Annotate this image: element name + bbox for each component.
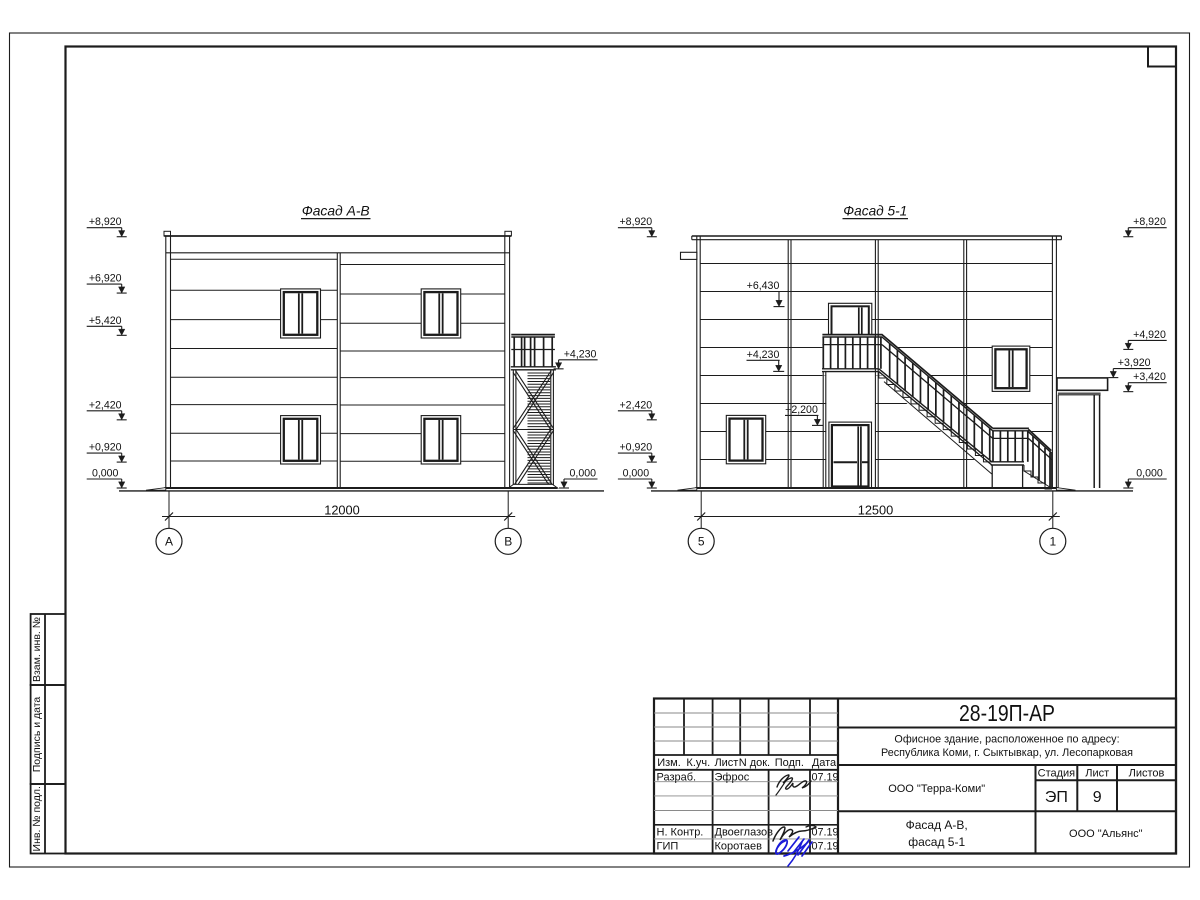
svg-text:Коротаев: Коротаев <box>715 841 763 853</box>
svg-text:+8,920: +8,920 <box>89 216 122 228</box>
svg-text:К.уч.: К.уч. <box>686 757 710 769</box>
svg-text:+4,230: +4,230 <box>747 349 780 361</box>
svg-text:Офисное здание, расположенное: Офисное здание, расположенное по адресу: <box>894 734 1119 746</box>
svg-text:+6,430: +6,430 <box>747 280 780 292</box>
svg-text:Лист: Лист <box>714 757 738 769</box>
svg-text:07.19: 07.19 <box>812 841 839 853</box>
svg-text:+2,420: +2,420 <box>89 399 122 411</box>
svg-text:А: А <box>165 535 173 549</box>
svg-text:+4,920: +4,920 <box>1133 329 1166 341</box>
svg-text:Подпись и дата: Подпись и дата <box>31 697 43 773</box>
svg-text:07.19: 07.19 <box>812 771 839 783</box>
svg-text:Н. Контр.: Н. Контр. <box>657 827 704 839</box>
svg-text:ГИП: ГИП <box>657 841 679 853</box>
svg-text:+6,920: +6,920 <box>89 273 122 285</box>
svg-text:0,000: 0,000 <box>569 468 596 480</box>
svg-text:Дата: Дата <box>812 757 837 769</box>
svg-text:+8,920: +8,920 <box>619 216 652 228</box>
svg-text:Лист: Лист <box>1085 768 1109 780</box>
svg-text:ООО "Терра-Коми": ООО "Терра-Коми" <box>888 783 985 795</box>
svg-text:Эфрос: Эфрос <box>715 771 750 783</box>
svg-text:0,000: 0,000 <box>1136 468 1163 480</box>
svg-text:ООО "Альянс": ООО "Альянс" <box>1069 828 1143 840</box>
svg-text:12500: 12500 <box>858 502 894 517</box>
svg-text:В: В <box>504 535 512 549</box>
svg-text:фасад 5-1: фасад 5-1 <box>908 835 965 849</box>
svg-text:Республика Коми, г. Сыктывкар,: Республика Коми, г. Сыктывкар, ул. Лесоп… <box>881 747 1133 759</box>
svg-text:+0,920: +0,920 <box>619 442 652 454</box>
svg-text:+8,920: +8,920 <box>1133 216 1166 228</box>
svg-text:Фасад А-В,: Фасад А-В, <box>906 818 968 832</box>
svg-text:0,000: 0,000 <box>623 468 650 480</box>
svg-text:ЭП: ЭП <box>1045 789 1068 806</box>
svg-text:Инв. № подл.: Инв. № подл. <box>31 786 43 851</box>
svg-text:Листов: Листов <box>1129 768 1165 780</box>
svg-text:Разраб.: Разраб. <box>657 771 697 783</box>
svg-text:+5,420: +5,420 <box>89 315 122 327</box>
svg-text:Фасад 5-1: Фасад 5-1 <box>843 203 907 219</box>
svg-text:N док.: N док. <box>739 757 770 769</box>
svg-text:Взам. инв. №: Взам. инв. № <box>31 617 43 682</box>
svg-text:+0,920: +0,920 <box>89 442 122 454</box>
svg-text:0,000: 0,000 <box>92 468 119 480</box>
svg-text:28-19П-АР: 28-19П-АР <box>959 700 1055 726</box>
svg-text:9: 9 <box>1093 789 1102 806</box>
svg-text:+3,420: +3,420 <box>1133 371 1166 383</box>
svg-text:Изм.: Изм. <box>657 757 681 769</box>
svg-text:1: 1 <box>1049 535 1056 549</box>
svg-text:Стадия: Стадия <box>1038 768 1076 780</box>
svg-text:5: 5 <box>698 535 705 549</box>
svg-text:+2,200: +2,200 <box>785 404 818 416</box>
svg-text:Фасад А-В: Фасад А-В <box>302 203 370 219</box>
svg-text:Подп.: Подп. <box>775 757 804 769</box>
svg-text:Двоеглазов: Двоеглазов <box>715 827 774 839</box>
svg-text:+3,920: +3,920 <box>1118 357 1151 369</box>
svg-text:+4,230: +4,230 <box>564 348 597 360</box>
svg-text:07.19: 07.19 <box>812 827 839 839</box>
svg-text:12000: 12000 <box>324 502 360 517</box>
svg-text:+2,420: +2,420 <box>619 399 652 411</box>
